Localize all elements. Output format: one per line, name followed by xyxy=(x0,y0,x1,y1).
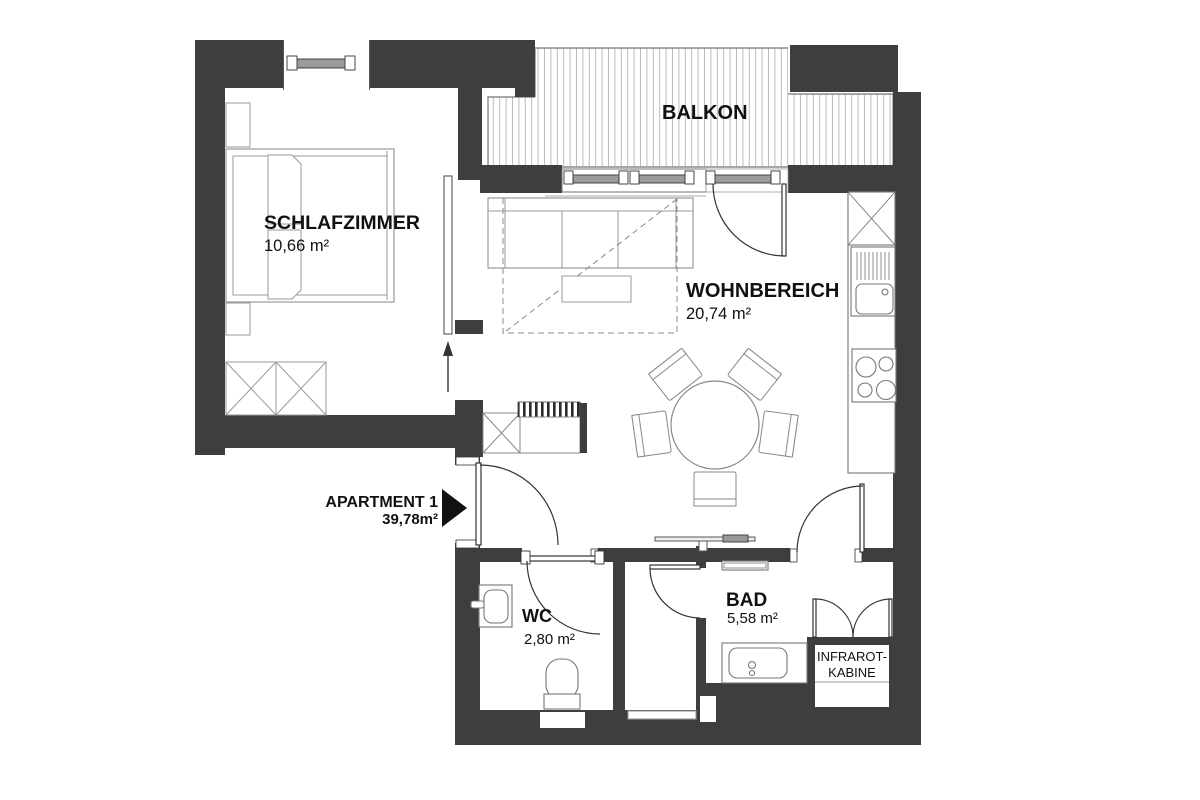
wall-left xyxy=(195,40,225,455)
bedroom-furniture xyxy=(226,103,394,415)
wall-balcony-top-right-block xyxy=(790,45,898,92)
living-furniture xyxy=(483,198,798,551)
entrance-arrow-icon xyxy=(442,489,467,527)
label-bad-area: 5,58 m² xyxy=(727,610,778,627)
wall-entry-bottom xyxy=(455,543,480,720)
label-infrarot-line2: KABINE xyxy=(828,665,876,680)
label-wc: WC xyxy=(522,606,552,626)
bedroom-window xyxy=(283,40,370,90)
kitchen xyxy=(848,192,896,473)
wall-wc-divider xyxy=(613,562,625,710)
label-bad: BAD xyxy=(726,590,767,611)
arrow-up-icon xyxy=(443,341,453,356)
label-apartment: APARTMENT 1 xyxy=(325,494,438,511)
cooktop xyxy=(852,349,896,402)
nightstand xyxy=(226,103,250,147)
entry-rack-hatched xyxy=(518,402,580,417)
coffee-table xyxy=(562,276,631,302)
dining-table xyxy=(671,381,759,469)
wall-top-step xyxy=(515,40,535,97)
floor-plan-canvas: SCHLAFZIMMER 10,66 m² BALKON WOHNBEREICH… xyxy=(0,0,1200,800)
radiator xyxy=(722,561,768,570)
niche-below-toilet xyxy=(540,712,585,728)
label-wohnbereich-area: 20,74 m² xyxy=(686,305,752,323)
nightstand xyxy=(226,303,250,335)
wall-bedroom-living-divider xyxy=(458,88,482,180)
wall-shower-bottom xyxy=(696,618,706,683)
wardrobe xyxy=(226,362,326,415)
bad-door-jamb-left xyxy=(790,549,797,562)
wall-divider-pier xyxy=(455,320,483,334)
bad-door xyxy=(797,484,864,552)
label-balkon: BALKON xyxy=(662,102,748,124)
toilet xyxy=(544,659,580,709)
infrarot-kabine-doors xyxy=(813,599,892,637)
bedroom-sliding-door xyxy=(443,176,453,392)
floor-plan-svg: SCHLAFZIMMER 10,66 m² BALKON WOHNBEREICH… xyxy=(0,0,1200,800)
wall-window-cap xyxy=(480,165,562,193)
label-wc-area: 2,80 m² xyxy=(524,631,575,648)
wall-right xyxy=(893,92,921,712)
kitchen-tall-cabinet xyxy=(848,192,895,245)
label-infrarot-line1: INFRAROT- xyxy=(817,649,887,664)
kitchen-sink xyxy=(851,247,895,316)
sofa xyxy=(488,198,693,268)
label-apartment-area: 39,78m² xyxy=(382,511,438,528)
label-wohnbereich: WOHNBEREICH xyxy=(686,280,839,302)
entrance-door xyxy=(476,463,558,545)
shower-tray xyxy=(628,711,696,719)
wall-niches xyxy=(456,457,889,728)
wall-balcony-bottom-right xyxy=(788,165,898,193)
entry-wardrobe xyxy=(483,402,587,453)
label-schlafzimmer: SCHLAFZIMMER xyxy=(264,212,420,234)
living-room-window xyxy=(545,169,706,196)
shower-door xyxy=(650,565,700,618)
wall-living-bottom xyxy=(598,548,790,562)
bad-vanity xyxy=(722,643,807,683)
niche-bad-step xyxy=(700,696,716,722)
wardrobe-end-panel xyxy=(580,403,587,453)
entrance-marker: APARTMENT 1 39,78m² xyxy=(325,489,467,528)
balcony-door xyxy=(706,169,788,256)
wall-bad-top-right xyxy=(862,548,921,562)
label-schlafzimmer-area: 10,66 m² xyxy=(264,237,330,255)
wall-wc-top-left xyxy=(480,548,522,562)
wall-bedroom-bottom xyxy=(195,415,457,448)
